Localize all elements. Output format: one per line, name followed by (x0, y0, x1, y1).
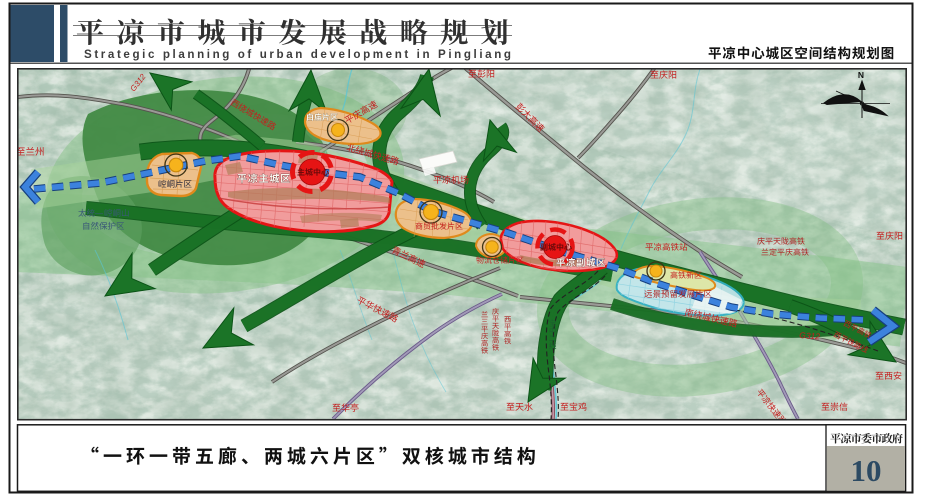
svg-text:N: N (858, 70, 864, 80)
svg-text:G312: G312 (799, 330, 821, 341)
svg-text:—: — (95, 209, 103, 218)
svg-text:Strategic planning of urban de: Strategic planning of urban development … (84, 48, 514, 61)
svg-text:10: 10 (851, 453, 882, 488)
